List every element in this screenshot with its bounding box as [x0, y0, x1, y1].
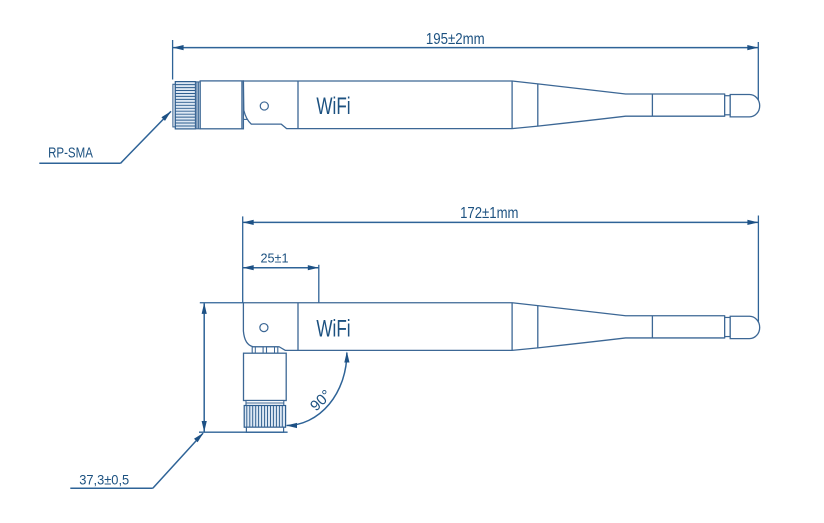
svg-text:RP-SMA: RP-SMA — [48, 146, 93, 162]
svg-text:37,3±0,5: 37,3±0,5 — [79, 473, 129, 488]
svg-text:WiFi: WiFi — [316, 315, 350, 342]
svg-text:172±1mm: 172±1mm — [460, 205, 518, 222]
svg-text:195±2mm: 195±2mm — [426, 31, 485, 48]
svg-text:25±1: 25±1 — [261, 251, 289, 265]
svg-text:WiFi: WiFi — [316, 93, 350, 120]
